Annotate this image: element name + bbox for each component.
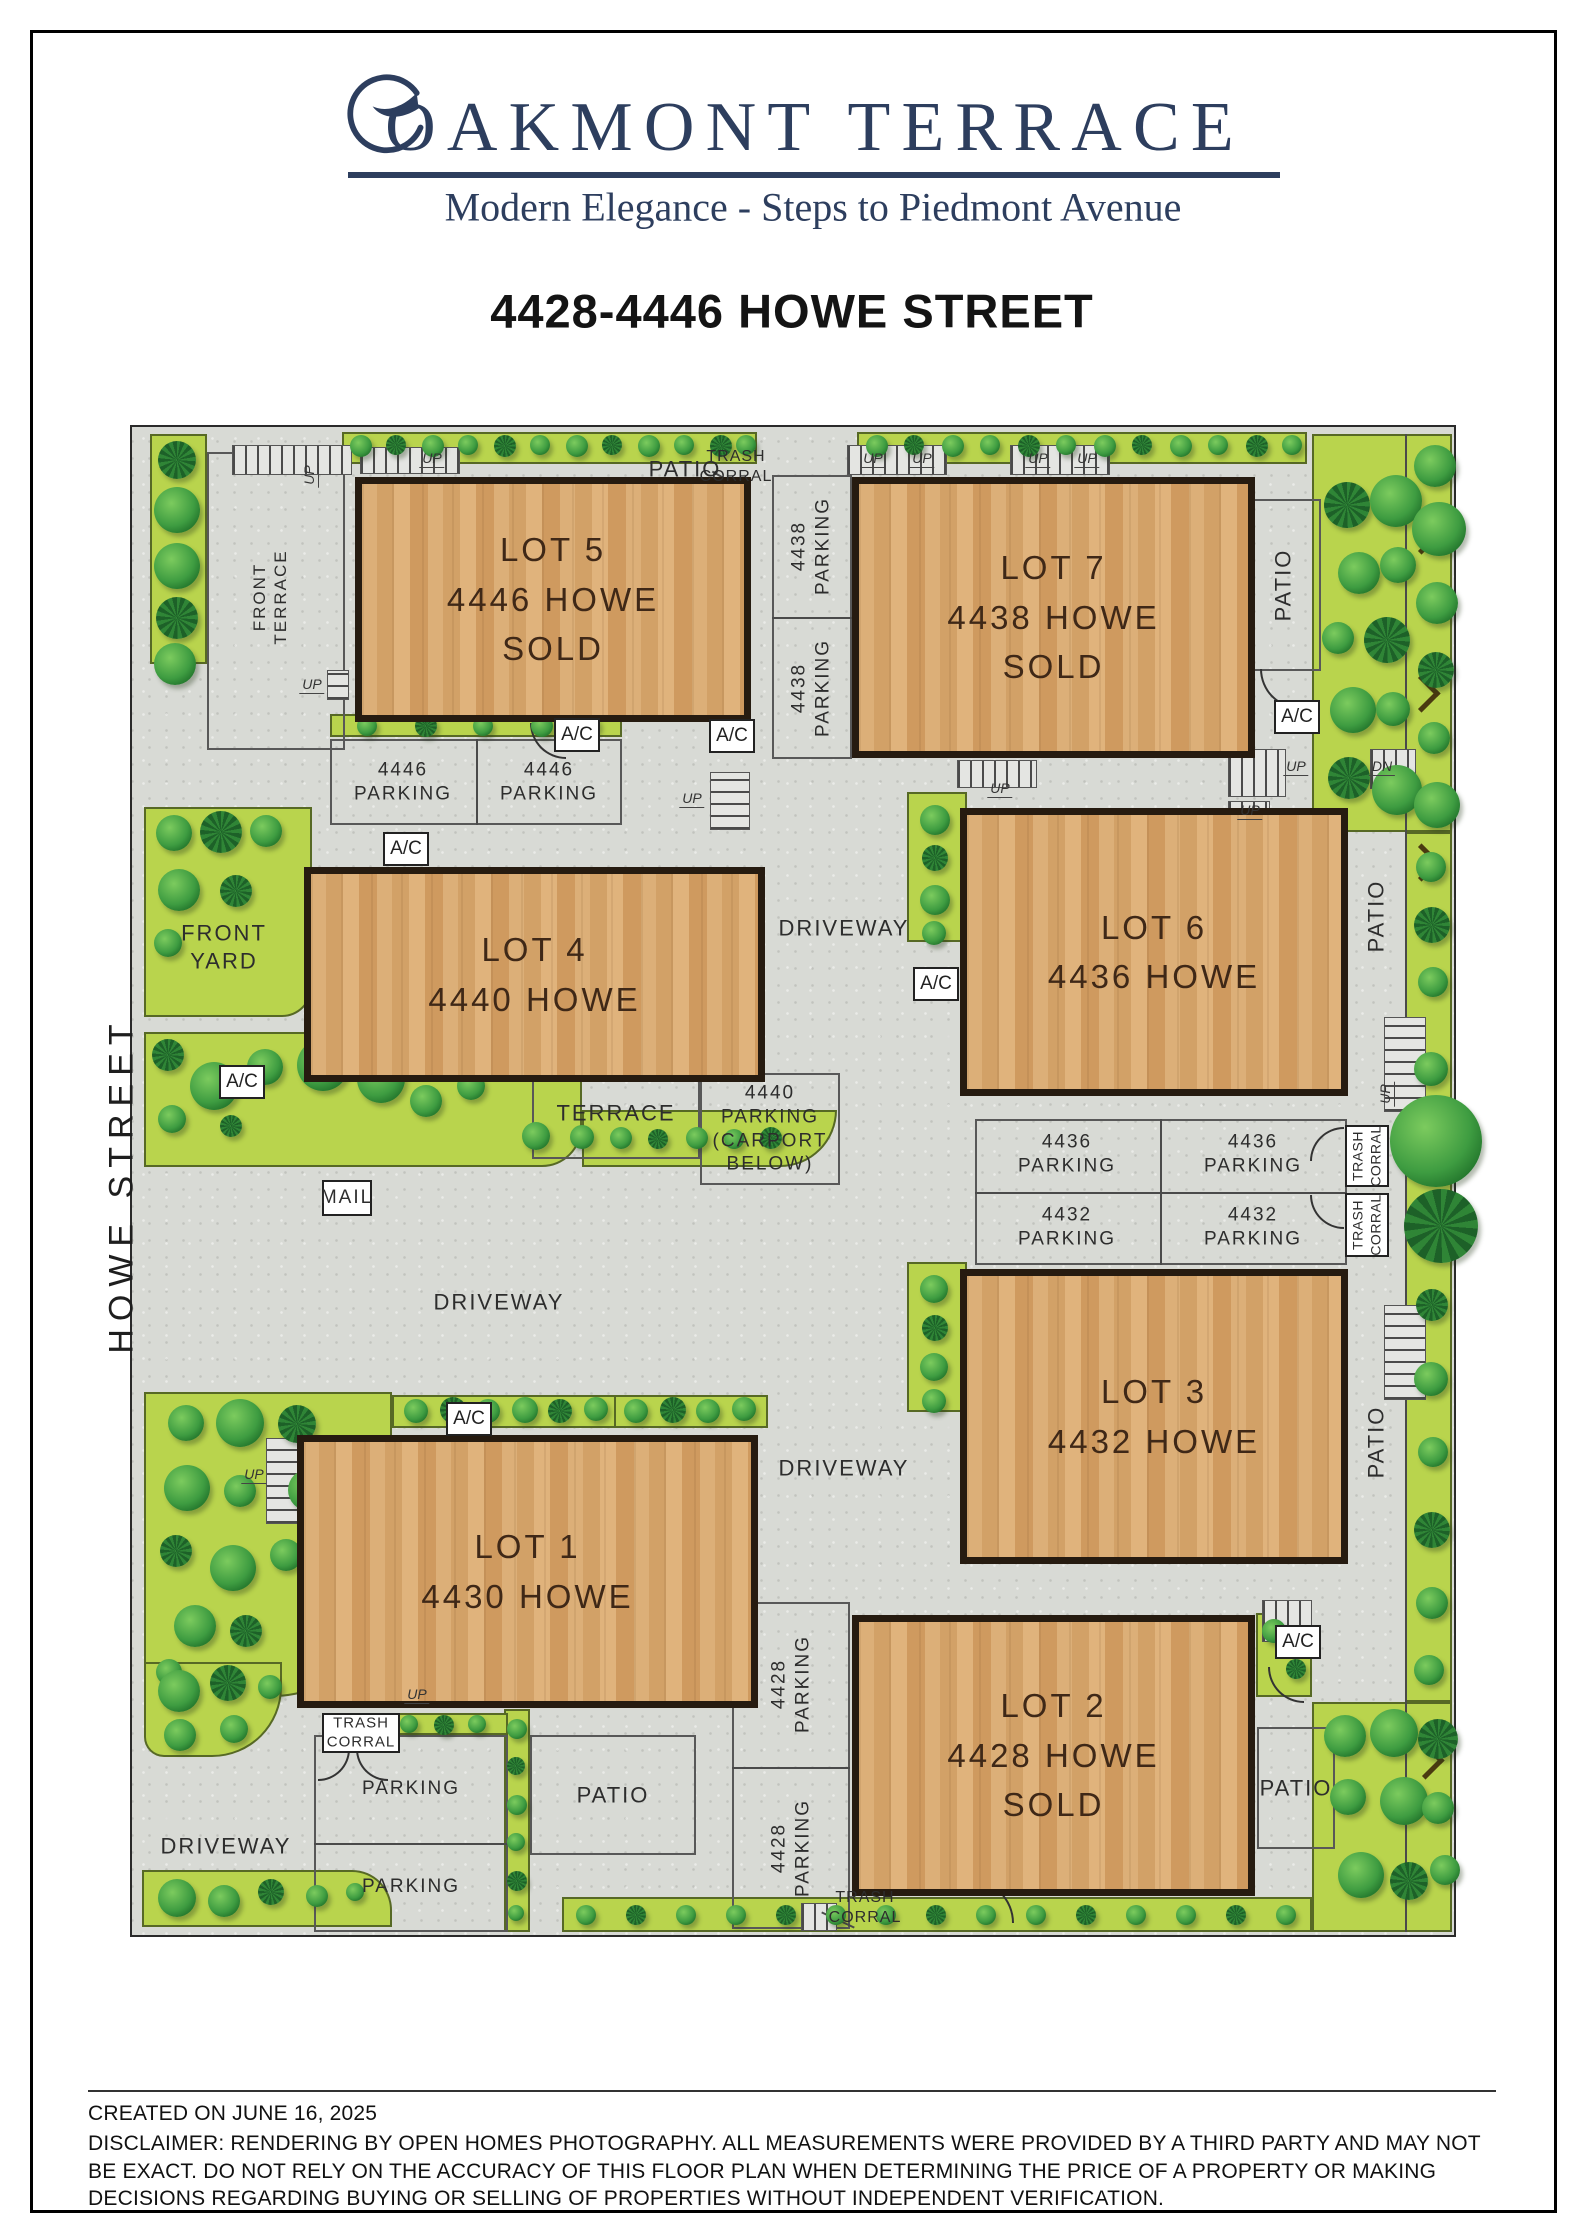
parking-divider: [314, 1843, 508, 1845]
property-line: [1405, 434, 1407, 1932]
stairs: [327, 670, 349, 700]
lot2-status: SOLD: [1003, 1780, 1105, 1830]
bush-icon: [507, 1719, 527, 1739]
palm-tree-icon: [1390, 1862, 1428, 1900]
bush-icon: [1056, 435, 1076, 455]
palm-tree-icon: [220, 1115, 242, 1137]
palm-tree-icon: [230, 1615, 262, 1647]
patio-label: PATIO: [1269, 549, 1297, 622]
bush-icon: [258, 1675, 282, 1699]
up-stair-label: UP: [1237, 802, 1262, 820]
bush-icon: [458, 435, 478, 455]
bush-icon: [638, 435, 660, 457]
bush-icon: [1338, 552, 1380, 594]
palm-tree-icon: [1324, 482, 1370, 528]
up-stair-label: UP: [987, 780, 1012, 798]
bush-icon: [1276, 1905, 1296, 1925]
bush-icon: [1422, 1792, 1454, 1824]
bush-icon: [508, 1905, 524, 1921]
palm-tree-icon: [434, 1715, 454, 1735]
bush-icon: [920, 1275, 948, 1303]
patio-label: PATIO: [1362, 1406, 1390, 1479]
ac-unit: A/C: [554, 718, 600, 752]
parking-label-4446: 4446PARKING: [500, 758, 598, 806]
site-plan: LOT 5 4446 HOWE SOLD LOT 7 4438 HOWE SOL…: [130, 425, 1456, 1937]
bush-icon: [1430, 1855, 1460, 1885]
bush-icon: [1390, 1095, 1482, 1187]
lot3-building: LOT 3 4432 HOWE: [960, 1269, 1348, 1564]
lot1-address: 4430 HOWE: [421, 1572, 633, 1622]
bush-icon: [570, 1125, 594, 1149]
trash-corral-label: TRASHCORRAL: [327, 1714, 396, 1752]
bush-icon: [220, 1715, 248, 1743]
palm-tree-icon: [1076, 1905, 1096, 1925]
ac-unit: A/C: [383, 832, 429, 866]
ac-unit: A/C: [709, 719, 755, 753]
lot7-building: LOT 7 4438 HOWE SOLD: [852, 477, 1255, 758]
bush-icon: [1376, 692, 1410, 726]
lot5-address: 4446 HOWE: [447, 575, 659, 625]
parking-divider: [732, 1767, 850, 1769]
driveway-label: DRIVEWAY: [434, 1288, 565, 1316]
bush-icon: [1370, 1709, 1418, 1757]
lot7-address: 4438 HOWE: [947, 593, 1159, 643]
bush-icon: [576, 1905, 596, 1925]
palm-tree-icon: [152, 1039, 184, 1071]
bush-icon: [350, 435, 372, 457]
bush-icon: [530, 435, 550, 455]
bush-icon: [522, 1122, 550, 1150]
up-stair-label: UP: [301, 462, 319, 487]
up-stair-label: UP: [241, 1466, 266, 1484]
parking-label-4428: 4428PARKING: [767, 1799, 815, 1897]
bush-icon: [208, 1885, 240, 1917]
brand-name: OAKMONT TERRACE: [385, 88, 1245, 168]
trash-corral-label: TRASHCORRAL: [829, 1888, 902, 1928]
bush-icon: [158, 1670, 200, 1712]
brand-tagline: Modern Elegance - Steps to Piedmont Aven…: [445, 184, 1182, 231]
parking-label-4436: 4436PARKING: [1204, 1130, 1302, 1178]
bush-icon: [400, 1715, 418, 1733]
bush-icon: [980, 435, 1000, 455]
palm-tree-icon: [258, 1879, 284, 1905]
bush-icon: [1412, 502, 1466, 556]
terrace-label: TERRACE: [556, 1099, 675, 1127]
bush-icon: [1330, 687, 1376, 733]
bush-icon: [1414, 445, 1456, 487]
lot5-name: LOT 5: [500, 525, 606, 575]
trash-corral-label: TRASHCORRAL: [1350, 1125, 1385, 1186]
bush-icon: [210, 1545, 256, 1591]
lot4-name: LOT 4: [481, 925, 587, 975]
howe-street-label: HOWE STREET: [103, 1016, 142, 1353]
parking-label: PARKING: [362, 1777, 460, 1801]
palm-tree-icon: [200, 811, 242, 853]
palm-tree-icon: [922, 1315, 948, 1341]
palm-tree-icon: [1414, 907, 1450, 943]
bush-icon: [164, 1719, 196, 1751]
ac-unit: A/C: [219, 1065, 265, 1099]
palm-tree-icon: [386, 435, 406, 455]
palm-tree-icon: [160, 1535, 192, 1567]
bush-icon: [922, 1389, 946, 1413]
palm-tree-icon: [1286, 1659, 1306, 1679]
driveway-label: DRIVEWAY: [161, 1832, 292, 1860]
bush-icon: [154, 929, 182, 957]
bush-icon: [512, 1397, 538, 1423]
bush-icon: [154, 487, 200, 533]
stairs: [360, 447, 460, 474]
driveway-label: DRIVEWAY: [779, 914, 910, 942]
palm-tree-icon: [926, 1905, 946, 1925]
up-stair-label: UP: [1377, 1081, 1395, 1106]
palm-tree-icon: [158, 441, 196, 479]
bush-icon: [174, 1605, 216, 1647]
bush-icon: [158, 1879, 196, 1917]
ac-unit: A/C: [446, 1402, 492, 1436]
palm-tree-icon: [1246, 435, 1268, 457]
bush-icon: [410, 1085, 442, 1117]
bush-icon: [404, 1399, 428, 1423]
bush-icon: [1414, 1655, 1444, 1685]
palm-tree-icon: [1226, 1905, 1246, 1925]
bush-icon: [726, 1905, 746, 1925]
palm-tree-icon: [1404, 1189, 1478, 1263]
driveway-label: DRIVEWAY: [779, 1454, 910, 1482]
lot7-name: LOT 7: [1000, 543, 1106, 593]
bush-icon: [1208, 435, 1228, 455]
bush-icon: [250, 815, 282, 847]
bush-icon: [507, 1833, 525, 1851]
parking-divider: [975, 1192, 1347, 1194]
palm-tree-icon: [210, 1665, 246, 1701]
bush-icon: [507, 1795, 527, 1815]
palm-tree-icon: [507, 1757, 525, 1775]
front-yard-label: FRONTYARD: [181, 920, 267, 975]
parking-label-4438: 4438PARKING: [787, 639, 835, 737]
patio-label: PATIO: [577, 1781, 650, 1809]
palm-tree-icon: [548, 1399, 572, 1423]
bush-icon: [168, 1405, 204, 1441]
parking-divider: [476, 739, 478, 825]
lot3-name: LOT 3: [1101, 1367, 1207, 1417]
bush-icon: [942, 435, 964, 457]
disclaimer-text: DISCLAIMER: RENDERING BY OPEN HOMES PHOT…: [88, 2130, 1496, 2213]
bush-icon: [1418, 967, 1448, 997]
bush-icon: [610, 1127, 632, 1149]
patio-label: PATIO: [1362, 880, 1390, 953]
bush-icon: [1380, 547, 1416, 583]
palm-tree-icon: [776, 1905, 796, 1925]
lot2-name: LOT 2: [1000, 1681, 1106, 1731]
palm-tree-icon: [156, 597, 198, 639]
parking-label-4432: 4432PARKING: [1204, 1203, 1302, 1251]
up-stair-label: UP: [679, 790, 704, 808]
palm-tree-icon: [494, 435, 516, 457]
bush-icon: [1416, 582, 1458, 624]
bush-icon: [468, 1715, 486, 1733]
parking-label-4436: 4436PARKING: [1018, 1130, 1116, 1178]
bush-icon: [920, 805, 950, 835]
up-stair-label: UP: [860, 450, 885, 468]
palm-tree-icon: [507, 1871, 527, 1891]
lot5-building: LOT 5 4446 HOWE SOLD: [355, 477, 751, 722]
parking-label: PARKING: [362, 1875, 460, 1899]
mail-label: MAIL: [321, 1186, 373, 1210]
bush-icon: [154, 543, 200, 589]
parking-label-4440: 4440PARKING(CARPORTBELOW): [713, 1082, 828, 1177]
bush-icon: [1026, 1905, 1046, 1925]
lot4-address: 4440 HOWE: [428, 975, 640, 1025]
bush-icon: [566, 435, 588, 457]
bush-icon: [158, 1105, 186, 1133]
page-title: 4428-4446 HOWE STREET: [490, 284, 1094, 339]
bush-icon: [1126, 1905, 1146, 1925]
palm-tree-icon: [626, 1905, 646, 1925]
ac-unit: A/C: [1275, 1625, 1321, 1659]
up-stair-label: UP: [1283, 758, 1308, 776]
patio-label: PATIO: [1260, 1774, 1333, 1802]
bush-icon: [164, 1465, 210, 1511]
lot6-address: 4436 HOWE: [1048, 952, 1260, 1002]
palm-tree-icon: [1418, 652, 1454, 688]
bush-icon: [1380, 1777, 1428, 1825]
lot4-building: LOT 4 4440 HOWE: [304, 867, 765, 1082]
up-stair-label: UP: [909, 450, 934, 468]
bush-icon: [922, 921, 946, 945]
palm-tree-icon: [922, 845, 948, 871]
bush-icon: [1322, 622, 1354, 654]
bush-icon: [1414, 782, 1460, 828]
bush-icon: [1414, 1052, 1448, 1086]
trash-corral-label: TRASHCORRAL: [700, 447, 773, 487]
stairs: [710, 772, 750, 830]
ac-unit: A/C: [913, 967, 959, 1001]
bush-icon: [696, 1399, 720, 1423]
bush-icon: [1330, 1779, 1366, 1815]
footer-divider: [88, 2090, 1496, 2092]
up-stair-label: UP: [1074, 450, 1099, 468]
lot5-status: SOLD: [502, 624, 604, 674]
bush-icon: [920, 885, 950, 915]
bush-icon: [216, 1399, 264, 1447]
ac-unit: A/C: [1274, 700, 1320, 734]
lot1-name: LOT 1: [474, 1522, 580, 1572]
lot1-building: LOT 1 4430 HOWE: [297, 1435, 758, 1708]
palm-tree-icon: [1414, 1512, 1450, 1548]
bush-icon: [1282, 435, 1302, 455]
bush-icon: [976, 1905, 996, 1925]
bush-icon: [156, 815, 192, 851]
palm-tree-icon: [602, 435, 622, 455]
bush-icon: [1416, 1587, 1448, 1619]
lot3-address: 4432 HOWE: [1048, 1417, 1260, 1467]
parking-label-4432: 4432PARKING: [1018, 1203, 1116, 1251]
side-yard-green: [1405, 832, 1452, 1702]
bush-icon: [306, 1885, 328, 1907]
palm-tree-icon: [1364, 617, 1410, 663]
parking-label-4446: 4446PARKING: [354, 758, 452, 806]
front-terrace-label: FRONTTERRACE: [249, 549, 292, 644]
site-plan-page: OAKMONT TERRACE Modern Elegance - Steps …: [0, 0, 1584, 2240]
lot2-building: LOT 2 4428 HOWE SOLD: [852, 1615, 1255, 1896]
palm-tree-icon: [1132, 435, 1152, 455]
parking-label-4438: 4438PARKING: [787, 497, 835, 595]
bush-icon: [624, 1399, 648, 1423]
bush-icon: [1418, 722, 1450, 754]
trash-corral-label: TRASHCORRAL: [1350, 1194, 1385, 1255]
bush-icon: [686, 1127, 708, 1149]
palm-tree-icon: [220, 875, 252, 907]
up-stair-label: UP: [404, 1686, 429, 1704]
bush-icon: [1324, 1715, 1366, 1757]
up-stair-label: UP: [1025, 450, 1050, 468]
palm-tree-icon: [1418, 1719, 1458, 1759]
bush-icon: [674, 435, 694, 455]
lot6-building: LOT 6 4436 HOWE: [960, 808, 1348, 1096]
up-stair-label: UP: [419, 450, 444, 468]
bush-icon: [920, 1353, 948, 1381]
stairs: [232, 445, 352, 475]
up-stair-label: UP: [299, 676, 324, 694]
bush-icon: [154, 643, 196, 685]
palm-tree-icon: [648, 1129, 668, 1149]
lot7-status: SOLD: [1003, 642, 1105, 692]
dn-stair-label: DN: [1369, 758, 1395, 776]
lot2-address: 4428 HOWE: [947, 1731, 1159, 1781]
bush-icon: [1414, 1362, 1448, 1396]
bush-icon: [1176, 1905, 1196, 1925]
bush-icon: [676, 1905, 696, 1925]
palm-tree-icon: [1328, 757, 1370, 799]
lot6-name: LOT 6: [1101, 903, 1207, 953]
bush-icon: [1170, 435, 1192, 457]
bush-icon: [1418, 1437, 1448, 1467]
bush-icon: [158, 869, 200, 911]
palm-tree-icon: [1416, 1289, 1448, 1321]
parking-divider: [772, 617, 852, 619]
bush-icon: [584, 1397, 608, 1421]
bush-icon: [732, 1397, 756, 1421]
bush-icon: [1416, 852, 1446, 882]
created-date: CREATED ON JUNE 16, 2025: [88, 2102, 377, 2126]
palm-tree-icon: [660, 1397, 686, 1423]
parking-label-4428: 4428PARKING: [767, 1635, 815, 1733]
brand-rule: [348, 172, 1280, 178]
bush-icon: [1338, 1852, 1384, 1898]
